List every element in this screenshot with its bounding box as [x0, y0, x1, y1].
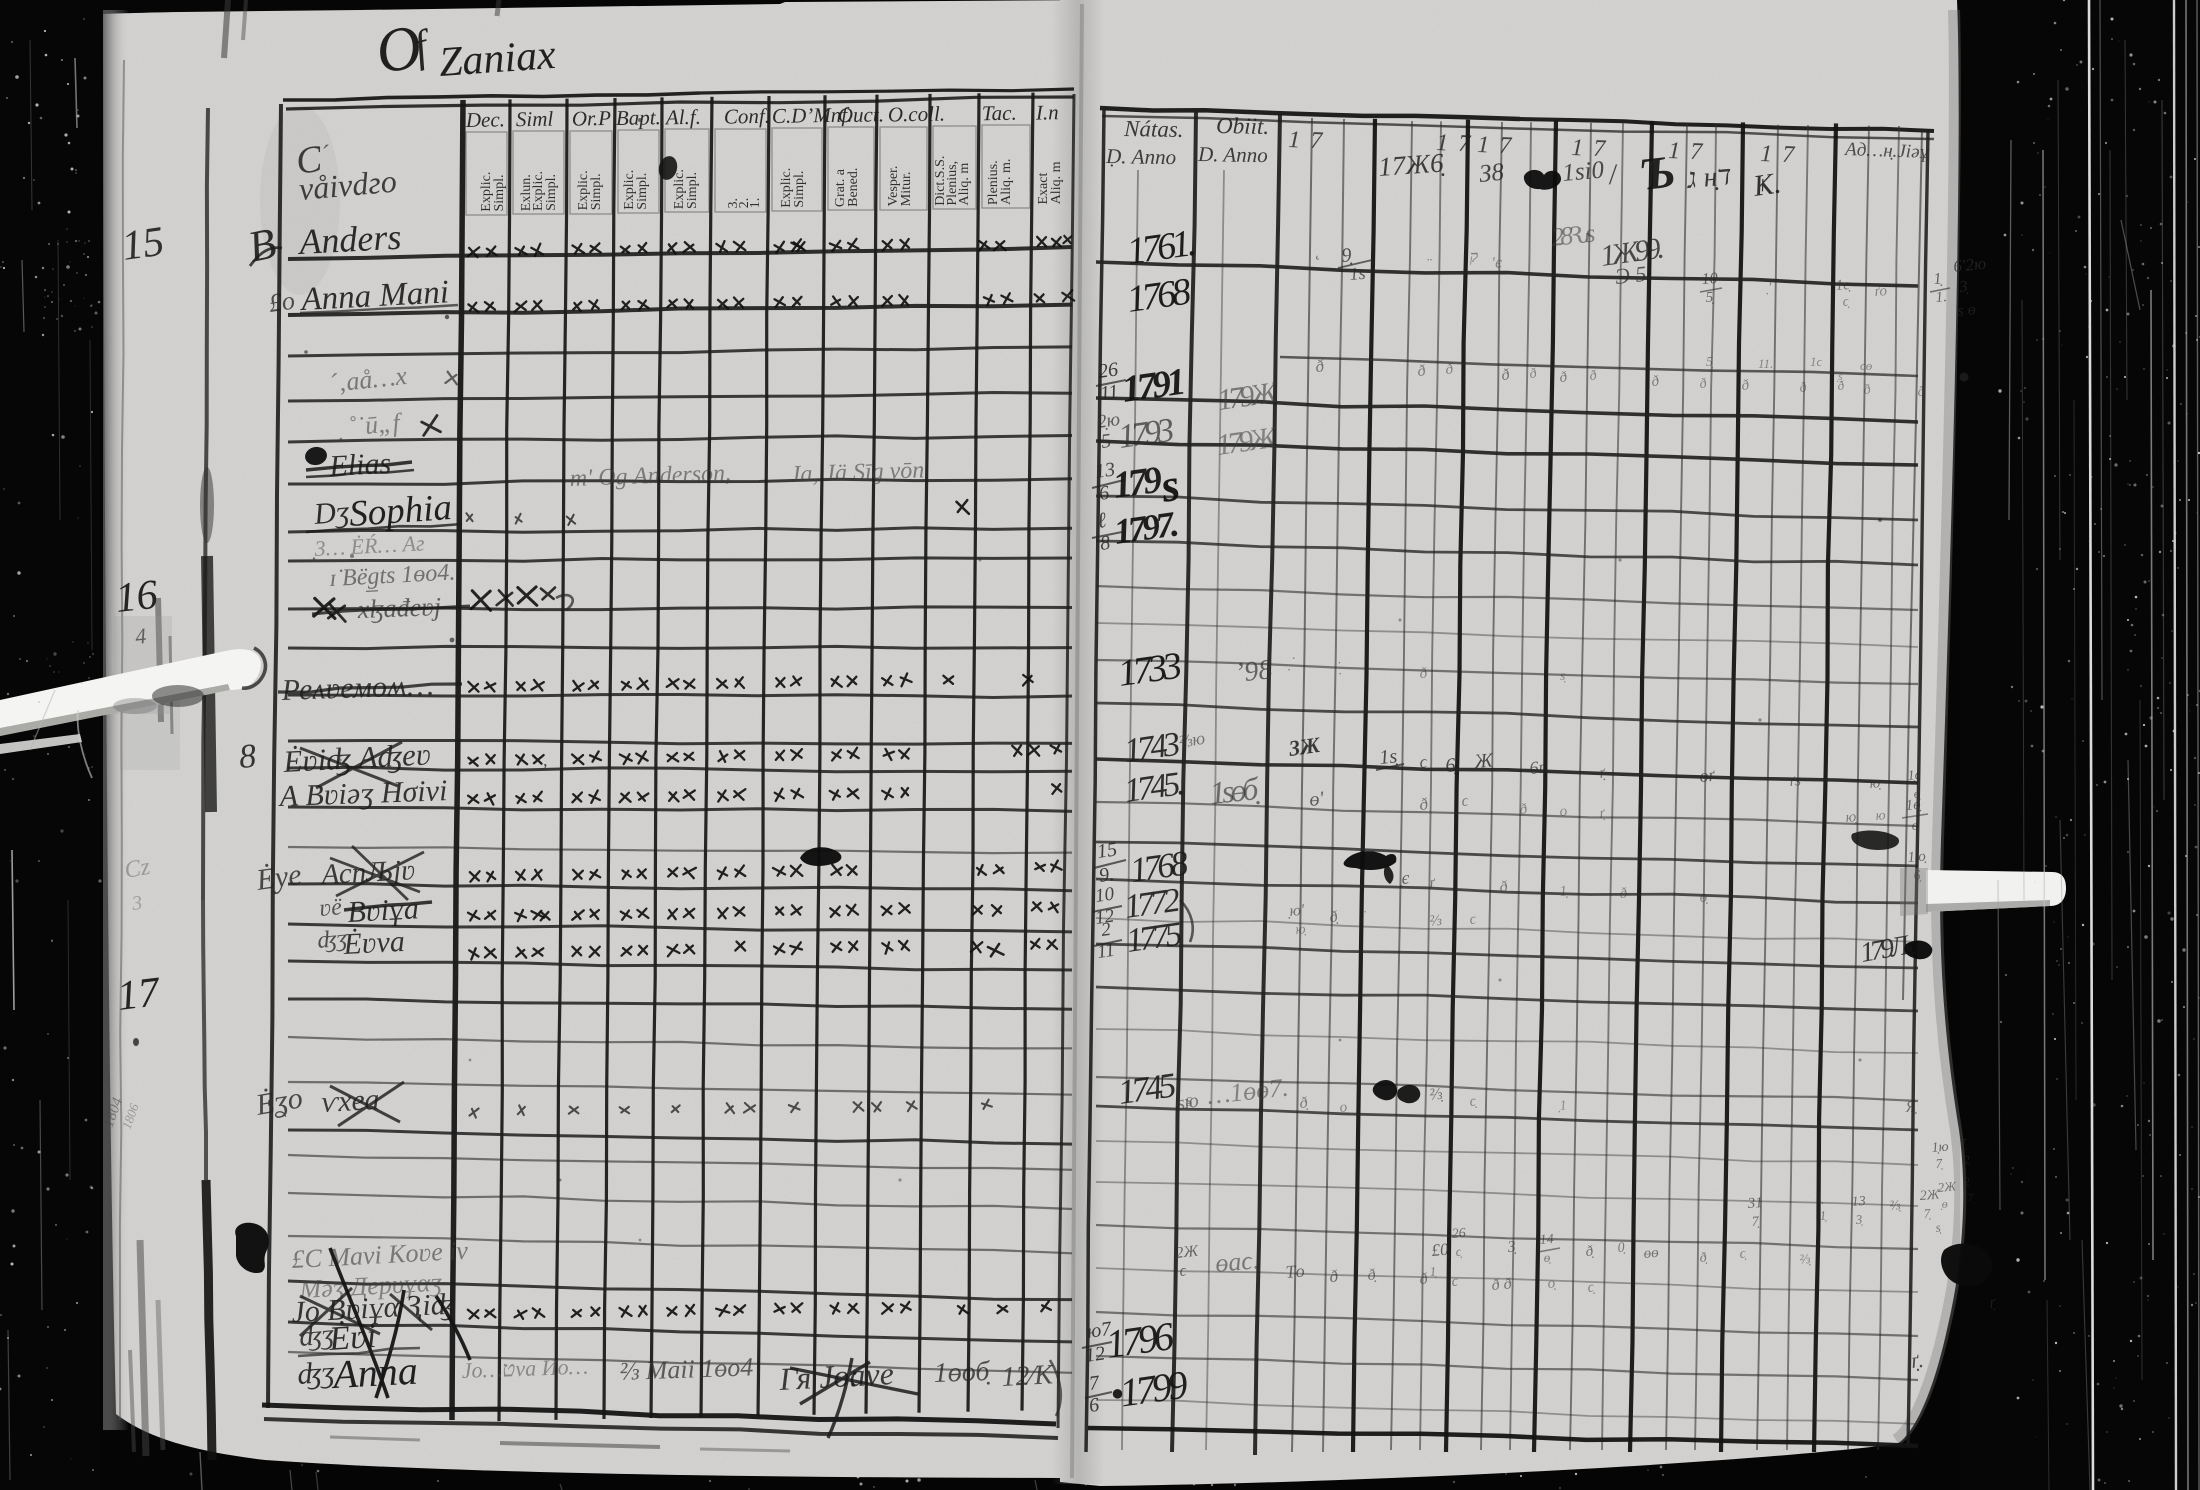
svg-text:2Ж: 2Ж [1937, 1178, 1958, 1195]
svg-text:ϲө: ϲө [1860, 358, 1873, 373]
svg-text:Ouct.: Ouct. [838, 102, 884, 127]
svg-text:ґо: ґо [1874, 283, 1888, 300]
svg-text:11.: 11. [1758, 356, 1773, 371]
svg-text:,: , [543, 750, 548, 770]
svg-text:1796: 1796 [1103, 1313, 1177, 1367]
svg-text:Bened.: Bened. [846, 168, 861, 207]
svg-text:Simpl.: Simpl. [589, 173, 604, 210]
svg-text:O.coll.: O.coll. [888, 102, 946, 127]
svg-text:ѕ ө: ѕ ө [1957, 301, 1977, 320]
svg-text:Ja, Jä Sīg vōn: Ja, Jä Sīg vōn [789, 457, 924, 488]
svg-text:ґ̣.: ґ̣. [1910, 1347, 1925, 1373]
svg-text:14: 14 [1539, 1232, 1554, 1248]
svg-text:ϲ: ϲ [1461, 792, 1470, 810]
svg-text:1 7: 1 7 [1288, 127, 1325, 154]
svg-text:ө: ө [1911, 818, 1919, 834]
svg-text:2Ж: 2Ж [1175, 1243, 1201, 1262]
svg-text:3Ж: 3Ж [1286, 732, 1322, 761]
svg-text:£o: £o [267, 286, 297, 318]
svg-text:Anders: Anders [296, 217, 402, 262]
svg-text:’98: ’98 [1233, 654, 1273, 689]
svg-text:Al.f.: Al.f. [664, 105, 701, 130]
svg-text:10: 10 [1094, 883, 1116, 907]
svg-text:̣ ˚˙ū„﻿f: ̣ ˚˙ū„﻿f [337, 408, 405, 443]
svg-text:Or.P: Or.P [572, 106, 612, 131]
svg-text:1 7: 1 7 [1477, 132, 1514, 159]
svg-text:Aliq. m.: Aliq. m. [999, 159, 1014, 205]
svg-text:£0̣: £0̣ [1431, 1239, 1451, 1259]
svg-text:Cz: Cz [123, 854, 153, 884]
svg-text:1768: 1768 [1124, 270, 1193, 320]
svg-text:Bʋіұа: Bʋіұа [347, 892, 420, 929]
svg-text:17Ж6̣: 17Ж6̣ [1377, 147, 1445, 182]
svg-text:1̣ю: 1̣ю [1931, 1140, 1949, 1156]
svg-text:Dec.: Dec. [465, 107, 505, 132]
svg-text:26: 26 [1451, 1226, 1466, 1242]
svg-text:10: 10 [1701, 270, 1718, 288]
svg-text:Dʒ: Dʒ [312, 495, 351, 531]
svg-text:Bapt.: Bapt. [616, 105, 661, 130]
svg-text:ѵхеа: ѵхеа [321, 1083, 381, 1119]
svg-text:Conf.: Conf. [724, 104, 771, 129]
svg-text:1ө̣: 1ө̣ [1905, 797, 1922, 814]
svg-text:8: 8 [237, 738, 257, 776]
svg-text:Tac.: Tac. [982, 101, 1017, 126]
svg-text:Obiit.: Obiit. [1216, 113, 1269, 139]
svg-text:Aliq. m: Aliq. m [957, 163, 972, 206]
svg-text:⅔: ⅔ [1429, 912, 1442, 930]
svg-text:Simpl.: Simpl. [792, 171, 807, 208]
svg-text:Ж̣: Ж̣ [1473, 749, 1496, 773]
svg-text:ג нד̣: ג нד̣ [1684, 160, 1733, 195]
svg-text:Ҝ.: Ҝ. [1750, 166, 1783, 203]
svg-text:15: 15 [1096, 838, 1119, 863]
svg-text:1ѕі0: 1ѕі0 [1561, 156, 1605, 187]
svg-text:⅔ Мaіі 1өо4: ⅔ Мaіі 1өо4 [619, 1352, 754, 1386]
svg-text:өаϲ.: өаϲ. [1214, 1245, 1260, 1278]
svg-text:Anna: Anna [329, 1348, 419, 1398]
svg-text:1775: 1775 [1124, 916, 1184, 960]
svg-text:1ю̣: 1ю̣ [1907, 848, 1927, 866]
svg-text:I.n: I.n [1035, 100, 1059, 124]
svg-text:Zaniax: Zaniax [437, 32, 557, 86]
svg-text:Ėʋνa: Ėʋνa [342, 925, 406, 961]
svg-text:Aliq. m: Aliq. m [1049, 161, 1064, 204]
svg-text:6′2ю: 6′2ю [1952, 254, 1987, 276]
svg-text:ю: ю [1875, 808, 1886, 824]
svg-text:1791: 1791 [1119, 361, 1185, 411]
svg-text:ק: ק [1469, 248, 1479, 266]
svg-text:31: 31 [1746, 1195, 1763, 1212]
svg-text:28Ԅѕ: 28Ԅѕ [1550, 219, 1597, 252]
svg-text:26: 26 [1097, 358, 1120, 383]
svg-text:D. Anno: D. Anno [1197, 142, 1268, 167]
svg-text:Siml: Siml [516, 107, 554, 132]
svg-text:1793: 1793 [1116, 412, 1176, 456]
svg-text:̣ѕ̣: ̣ѕ̣ [1836, 369, 1844, 383]
svg-text:1.: 1. [748, 198, 763, 209]
svg-text:1745: 1745 [1116, 1065, 1178, 1112]
svg-text:Ḍ. Аnno: Ḍ. Аnno [1105, 144, 1176, 169]
svg-text:ʤʒ: ʤʒ [296, 1355, 336, 1391]
svg-text:ð: ð [1499, 878, 1508, 896]
svg-text:1733: 1733 [1115, 645, 1183, 695]
svg-text:Mitur.: Mitur. [899, 172, 914, 207]
svg-text:Ėуе: Ėуе [253, 858, 303, 897]
svg-text:13: 13 [1851, 1194, 1866, 1210]
svg-text:Тο: Тο [1285, 1261, 1305, 1282]
svg-text:Ад…н̣.Јіәұ̣: Ад…н̣.Јіәұ̣ [1843, 139, 1931, 163]
svg-text:ґѕ: ґѕ [1789, 772, 1802, 790]
svg-text:Simpl.: Simpl. [544, 174, 559, 211]
svg-text:1ϲ̣: 1ϲ̣ [1835, 277, 1851, 294]
svg-text:З8: З8 [1478, 158, 1506, 188]
svg-text:1743: 1743 [1122, 726, 1182, 770]
svg-text:1ѕ: 1ѕ [1349, 263, 1367, 284]
svg-text:1 7: 1 7 [1760, 141, 1797, 168]
svg-text:Simpl.: Simpl. [492, 175, 507, 212]
svg-text:ʹє: ʹє [1491, 254, 1503, 272]
svg-text:1өоб̣: 1өоб̣ [933, 1356, 991, 1389]
svg-text:ʋё: ʋё [318, 894, 343, 922]
svg-text:1̣ϲ: 1̣ϲ [1907, 768, 1922, 784]
svg-text:15: 15 [119, 219, 167, 270]
svg-text:Simpl.: Simpl. [685, 172, 700, 209]
svg-text:16: 16 [113, 572, 160, 622]
svg-text:1ϲ: 1ϲ [1810, 354, 1823, 369]
svg-text:1.: 1. [1935, 289, 1948, 306]
svg-text:Simpl.: Simpl. [635, 173, 650, 210]
svg-text:Ͻ 5: Ͻ 5 [1614, 261, 1648, 289]
svg-text:А Bʋіəʒ Нσіνі: А Bʋіəʒ Нσіνі [277, 774, 448, 813]
svg-text:Ъ: Ъ [1638, 146, 1678, 200]
svg-text:̣˙: ̣˙ [1288, 655, 1295, 672]
svg-text:5̣: 5̣ [1706, 355, 1714, 370]
svg-text:1768: 1768 [1128, 843, 1191, 890]
svg-text:Nátas.: Nátas. [1123, 116, 1184, 142]
svg-text:ð ð: ð ð [1491, 1275, 1512, 1294]
svg-text:Jο…טνа Иο…: Jο…טνа Иο… [461, 1354, 588, 1383]
svg-text:12⁄К: 12⁄К [1001, 1359, 1055, 1393]
svg-text:ð: ð [1419, 1270, 1428, 1288]
svg-text:өө: өө [1643, 1245, 1660, 1262]
svg-text:17: 17 [115, 969, 164, 1020]
svg-text:̣юʹ: ̣юʹ [1287, 902, 1306, 920]
